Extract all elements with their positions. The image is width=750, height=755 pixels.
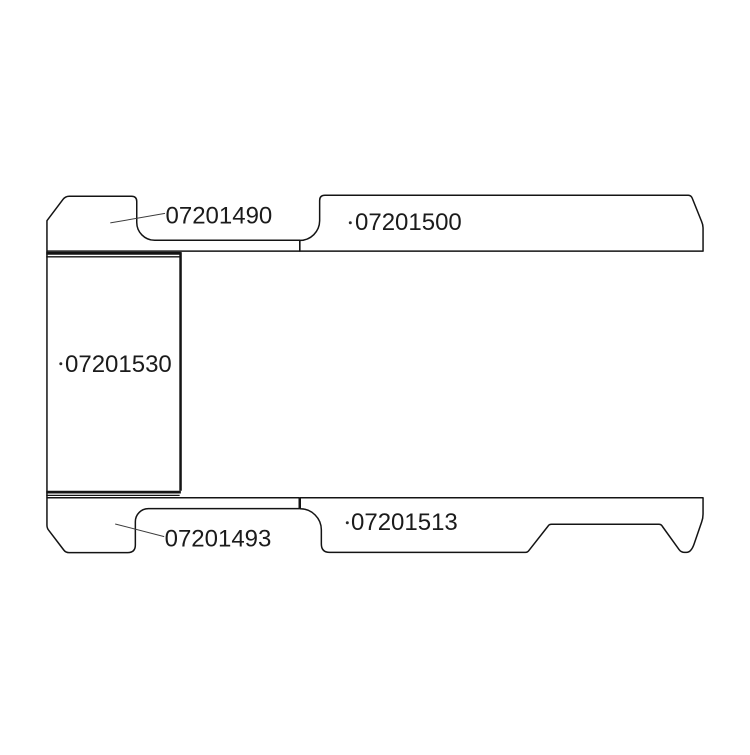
- svg-text:07201490: 07201490: [166, 202, 273, 229]
- svg-text:07201493: 07201493: [165, 526, 272, 553]
- svg-text:07201530: 07201530: [65, 351, 172, 378]
- svg-text:07201500: 07201500: [355, 209, 462, 236]
- svg-text:07201513: 07201513: [351, 509, 458, 536]
